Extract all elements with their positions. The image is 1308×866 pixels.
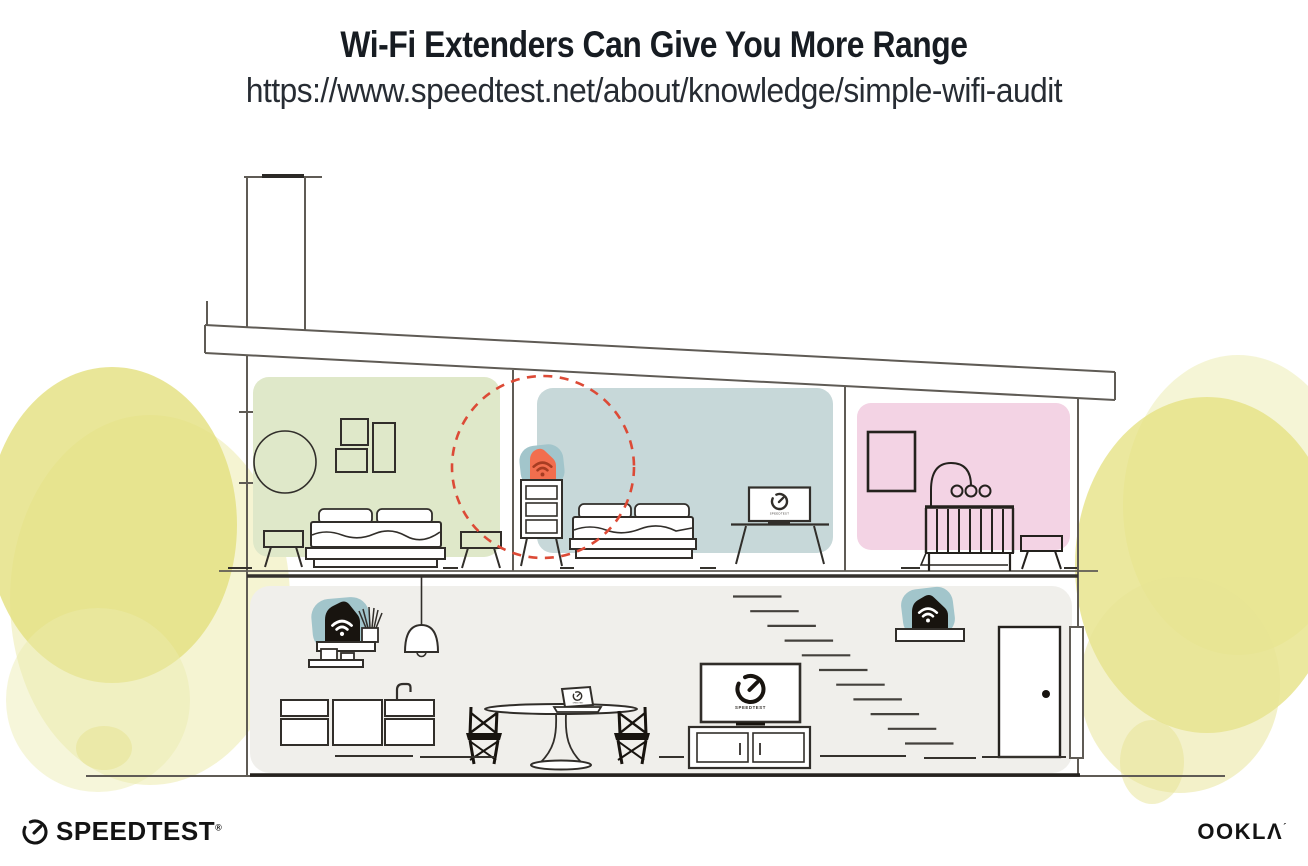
cup bbox=[321, 649, 337, 660]
ookla-accent-mark: ´ bbox=[1283, 823, 1288, 834]
registered-mark: ® bbox=[215, 822, 222, 832]
ookla-wordmark: OOKLΛ´ bbox=[1197, 819, 1288, 844]
room-pink-nursery bbox=[857, 403, 1070, 550]
cup bbox=[341, 653, 354, 660]
shelf-board bbox=[309, 660, 363, 667]
tv-lower: SPEEDTEST bbox=[701, 664, 800, 724]
speedtest-gauge-icon bbox=[22, 819, 48, 845]
speedtest-logo: SPEEDTEST® bbox=[22, 816, 222, 847]
house-illustration: SPEEDTEST bbox=[0, 0, 1308, 861]
tree-right bbox=[1075, 355, 1308, 804]
page-title: Wi-Fi Extenders Can Give You More Range bbox=[92, 24, 1217, 66]
shelf-board bbox=[896, 629, 964, 641]
chimney bbox=[244, 176, 322, 331]
tv-screen-label: SPEEDTEST bbox=[770, 512, 790, 516]
infographic-canvas: Wi-Fi Extenders Can Give You More Range … bbox=[0, 0, 1308, 861]
door-sidelight-window bbox=[1070, 627, 1083, 758]
ookla-logo: OOKLΛ´ bbox=[1197, 819, 1288, 845]
tv-screen-label: SPEEDTEST bbox=[735, 705, 766, 710]
entry-door bbox=[999, 627, 1060, 757]
dresser bbox=[521, 480, 562, 566]
speedtest-wordmark: SPEEDTEST® bbox=[56, 816, 222, 847]
laptop-screen-label: SPEEDTEST bbox=[573, 703, 585, 705]
door-knob bbox=[1042, 690, 1050, 698]
source-url-text: https://www.speedtest.net/about/knowledg… bbox=[46, 72, 1262, 111]
media-console bbox=[689, 727, 810, 768]
